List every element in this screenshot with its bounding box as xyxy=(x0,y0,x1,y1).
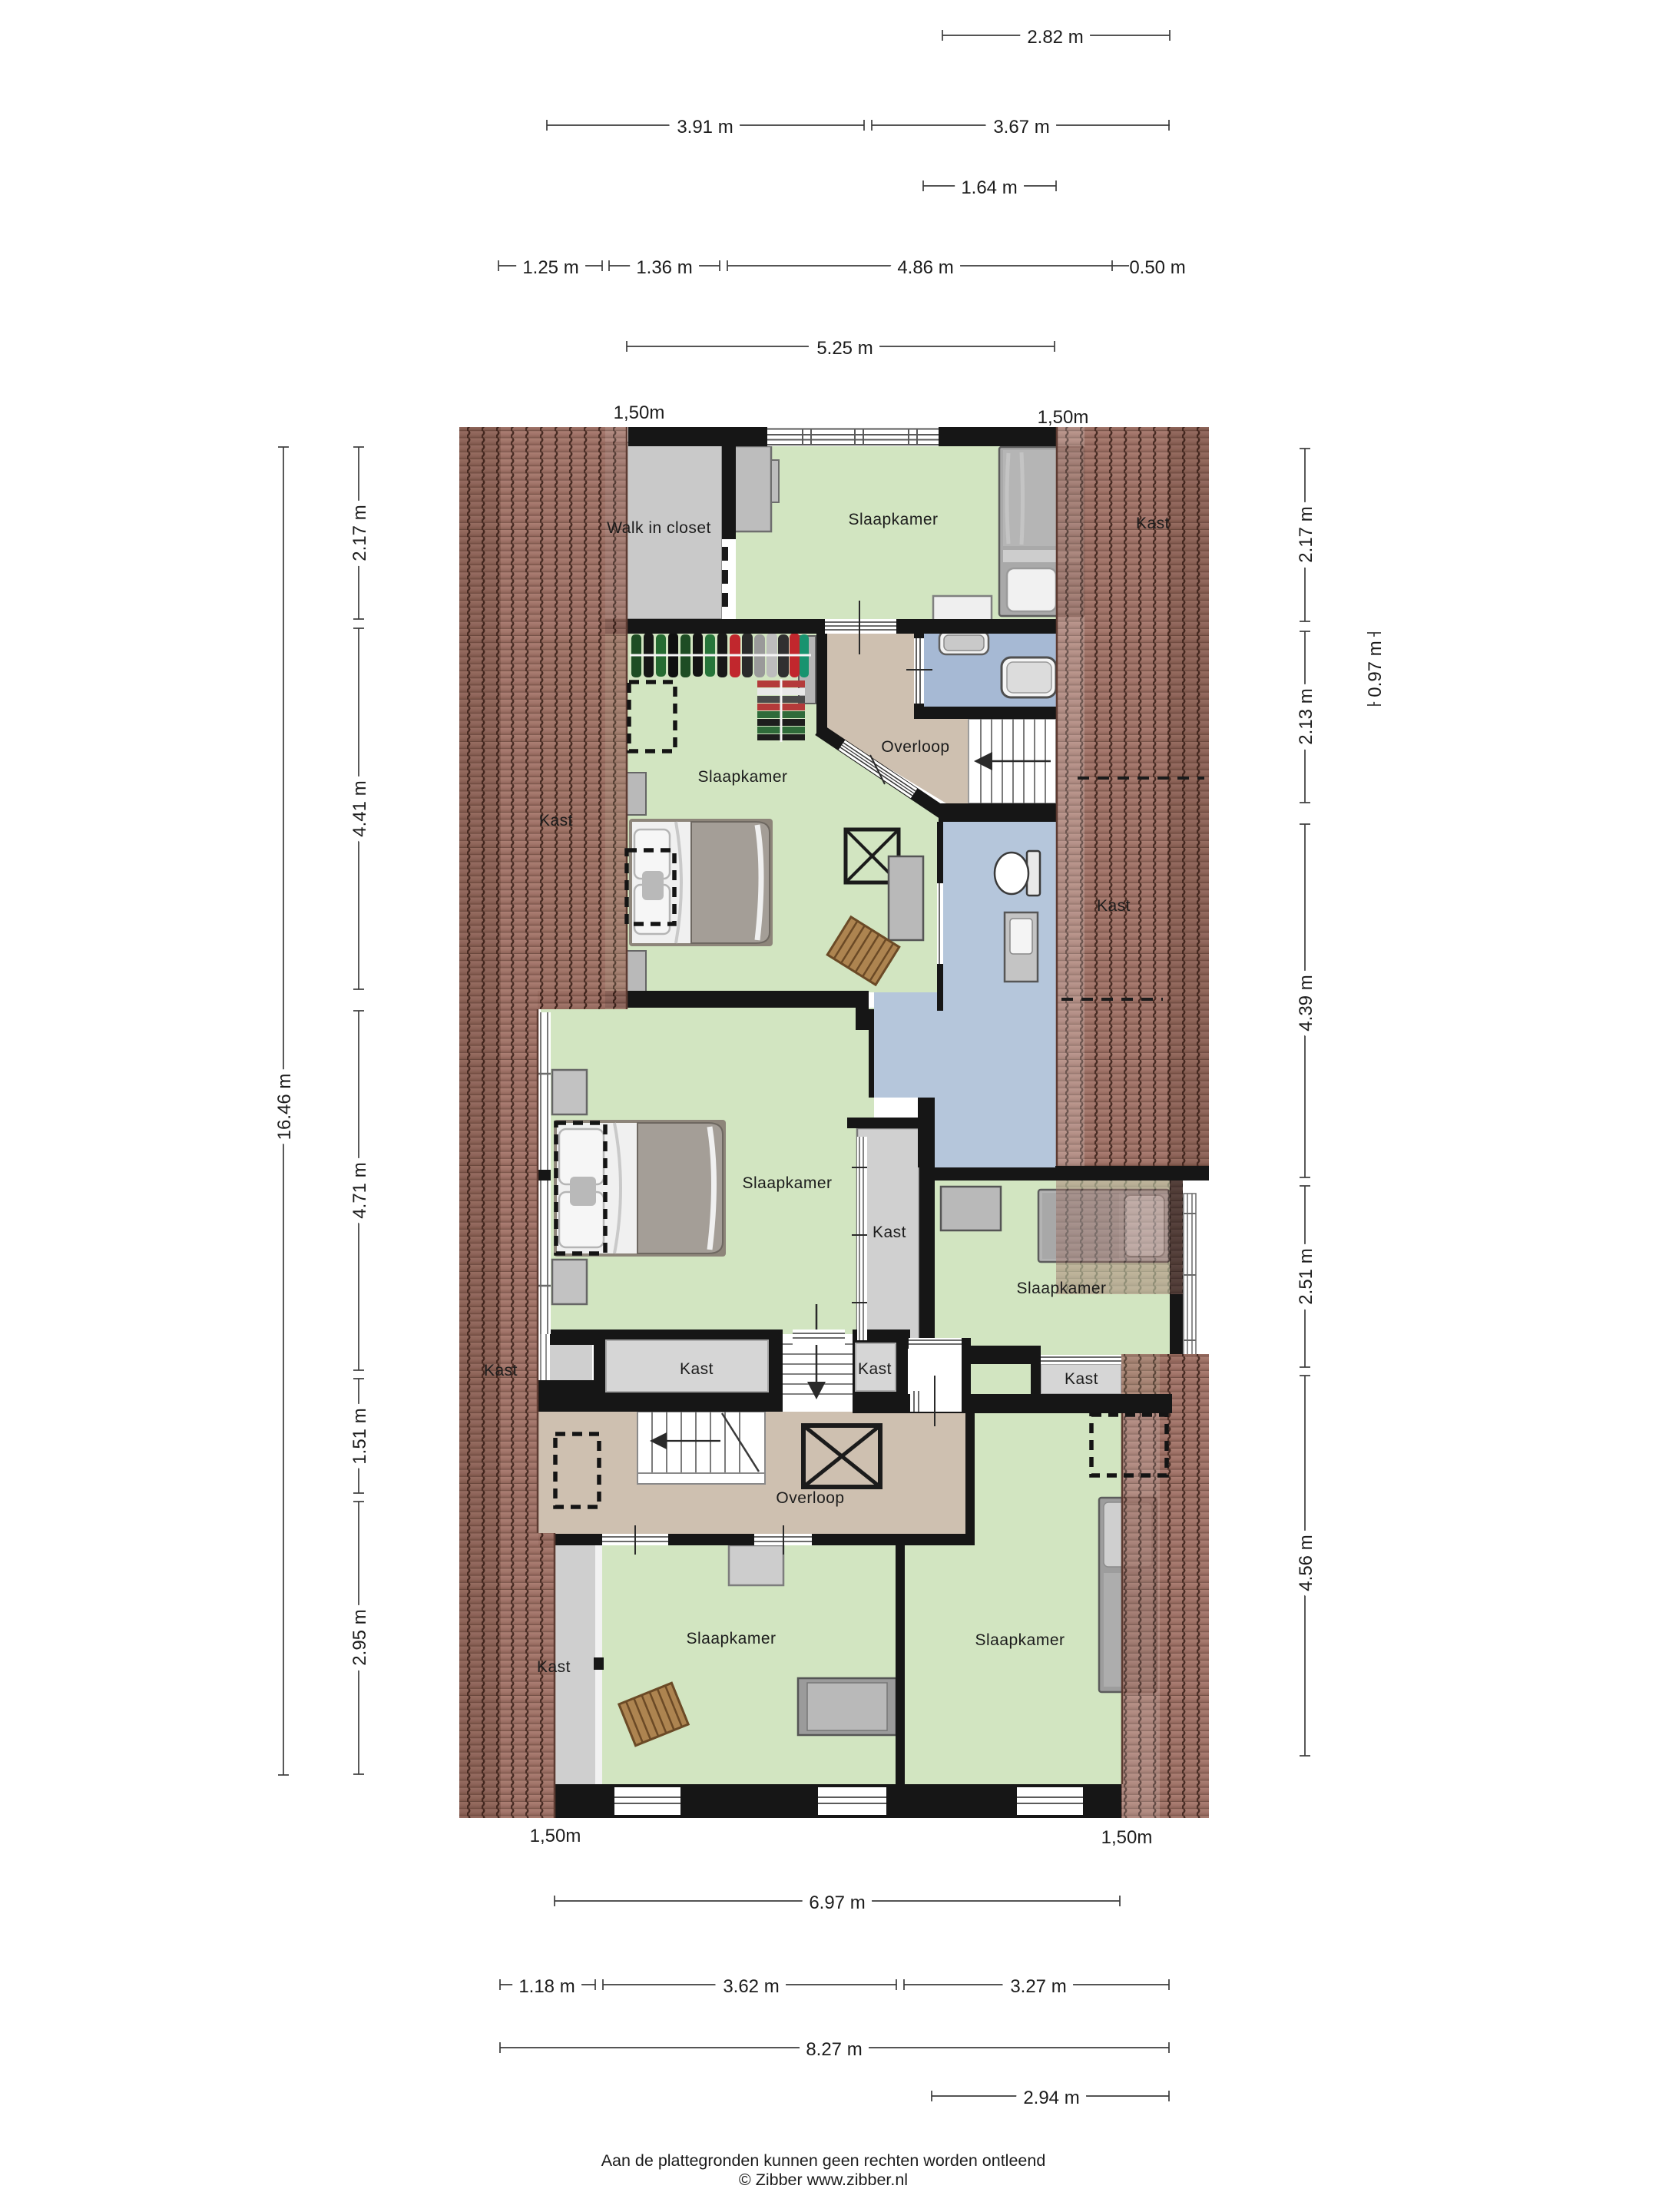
svg-text:1,50m: 1,50m xyxy=(1101,1827,1153,1848)
svg-text:1.36 m: 1.36 m xyxy=(636,257,692,278)
svg-text:Overloop: Overloop xyxy=(776,1489,844,1507)
svg-text:Slaapkamer: Slaapkamer xyxy=(1016,1280,1106,1297)
svg-text:Kast: Kast xyxy=(484,1362,518,1379)
svg-text:Slaapkamer: Slaapkamer xyxy=(686,1630,776,1647)
svg-text:2.17 m: 2.17 m xyxy=(1296,506,1316,562)
svg-text:5.25 m: 5.25 m xyxy=(816,338,873,359)
svg-text:Aan de plattegronden kunnen ge: Aan de plattegronden kunnen geen rechten… xyxy=(601,2151,1046,2170)
svg-text:Kast: Kast xyxy=(1136,515,1170,532)
svg-text:3.91 m: 3.91 m xyxy=(677,117,733,137)
svg-text:© Zibber www.zibber.nl: © Zibber www.zibber.nl xyxy=(739,2171,908,2189)
svg-text:Kast: Kast xyxy=(539,812,573,829)
svg-text:4.86 m: 4.86 m xyxy=(897,257,953,278)
svg-text:3.27 m: 3.27 m xyxy=(1010,1976,1066,1997)
svg-text:1,50m: 1,50m xyxy=(1038,407,1089,428)
svg-text:3.67 m: 3.67 m xyxy=(993,117,1049,137)
svg-text:Kast: Kast xyxy=(680,1360,714,1378)
svg-text:1,50m: 1,50m xyxy=(530,1826,581,1846)
svg-text:0.50 m: 0.50 m xyxy=(1129,257,1185,278)
svg-text:Kast: Kast xyxy=(1065,1370,1098,1388)
svg-text:1.18 m: 1.18 m xyxy=(518,1976,575,1997)
svg-text:2.51 m: 2.51 m xyxy=(1296,1248,1316,1304)
svg-text:6.97 m: 6.97 m xyxy=(809,1892,865,1913)
svg-text:2.95 m: 2.95 m xyxy=(349,1609,370,1665)
svg-text:4.39 m: 4.39 m xyxy=(1296,975,1316,1031)
svg-text:4.41 m: 4.41 m xyxy=(349,780,370,836)
svg-text:Slaapkamer: Slaapkamer xyxy=(697,768,787,786)
svg-text:Slaapkamer: Slaapkamer xyxy=(742,1174,832,1192)
svg-text:2.17 m: 2.17 m xyxy=(349,505,370,561)
svg-text:1.51 m: 1.51 m xyxy=(349,1408,370,1464)
svg-text:4.56 m: 4.56 m xyxy=(1296,1535,1316,1591)
svg-text:8.27 m: 8.27 m xyxy=(806,2039,862,2060)
svg-text:Kast: Kast xyxy=(858,1360,892,1378)
svg-text:Kast: Kast xyxy=(1097,897,1131,915)
svg-text:2.94 m: 2.94 m xyxy=(1023,2088,1079,2108)
svg-text:Slaapkamer: Slaapkamer xyxy=(848,511,938,528)
svg-text:Overloop: Overloop xyxy=(881,738,949,756)
svg-text:0.97 m: 0.97 m xyxy=(1365,641,1386,697)
svg-text:1.25 m: 1.25 m xyxy=(522,257,578,278)
svg-text:Slaapkamer: Slaapkamer xyxy=(975,1631,1065,1649)
svg-text:1,50m: 1,50m xyxy=(614,402,665,423)
svg-text:3.62 m: 3.62 m xyxy=(723,1976,779,1997)
svg-text:Walk in closet: Walk in closet xyxy=(607,519,711,537)
svg-text:1.64 m: 1.64 m xyxy=(961,177,1017,198)
svg-text:2.13 m: 2.13 m xyxy=(1296,688,1316,744)
svg-text:16.46 m: 16.46 m xyxy=(274,1074,295,1141)
svg-text:Kast: Kast xyxy=(537,1658,571,1676)
svg-text:Kast: Kast xyxy=(873,1224,906,1241)
svg-text:4.71 m: 4.71 m xyxy=(349,1162,370,1218)
svg-text:2.82 m: 2.82 m xyxy=(1027,27,1083,48)
